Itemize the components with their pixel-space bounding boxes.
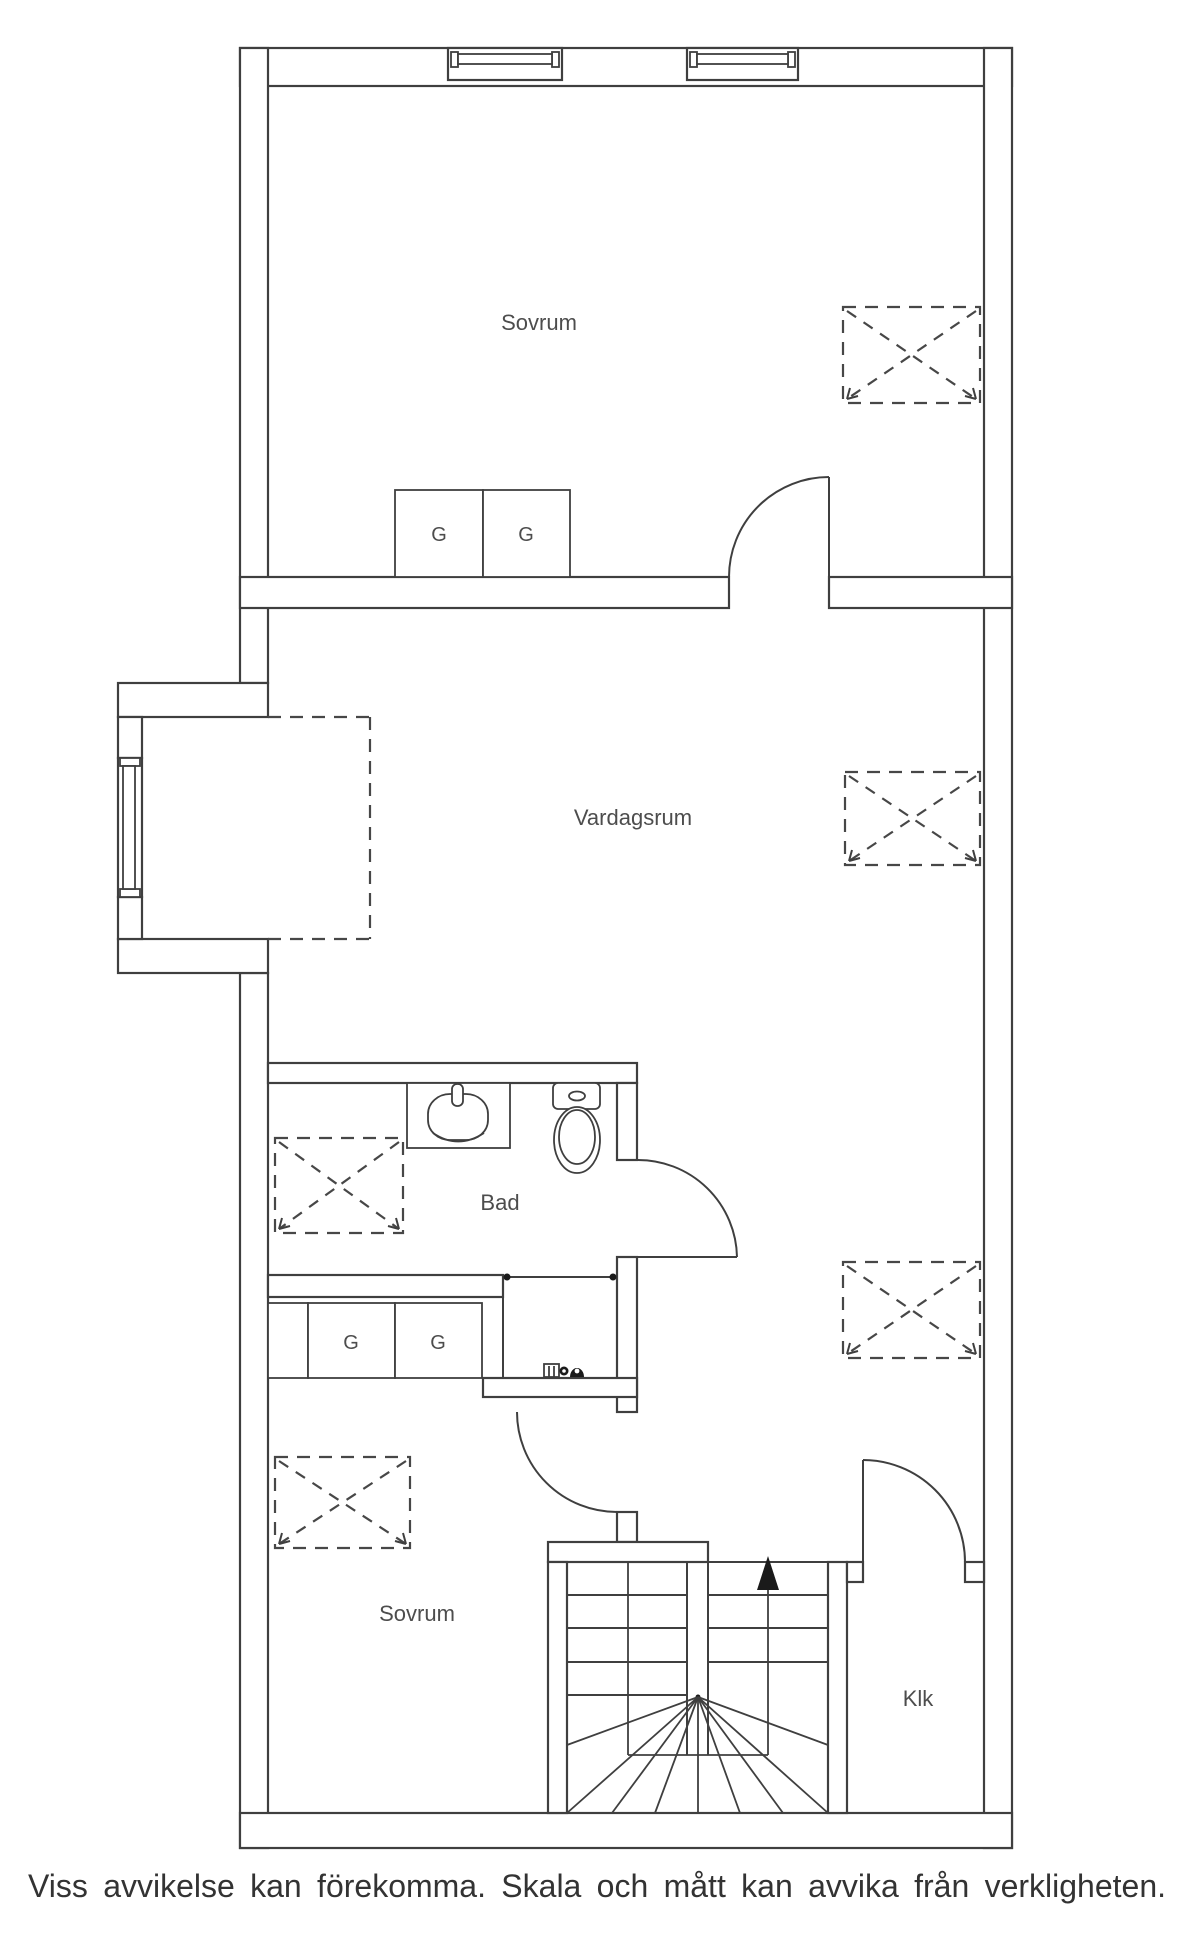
toilet-icon [553, 1083, 600, 1173]
window-icon [118, 758, 142, 897]
skylight-icon [843, 1262, 980, 1358]
door-swing-icon [729, 477, 829, 608]
wardrobe-label: G [431, 524, 447, 546]
window-icon [687, 48, 798, 80]
sink-icon [407, 1083, 510, 1148]
skylight-icon [275, 1457, 410, 1548]
room-label-bedroom-upper: Sovrum [501, 310, 577, 335]
wardrobe-label: G [343, 1332, 359, 1354]
stair-winder-fan [567, 1695, 828, 1814]
wardrobe-label: G [518, 524, 534, 546]
skylight-icon [843, 307, 980, 403]
wardrobe-icon [268, 490, 570, 1378]
staircase-icon [567, 1556, 828, 1813]
door-swing-icon [637, 1160, 737, 1257]
room-label-living-room: Vardagsrum [574, 805, 692, 830]
window-icon [448, 48, 562, 80]
floor-plan: G G G G [0, 0, 1200, 1955]
door-swing-icon [517, 1412, 617, 1512]
door-swing-icon [863, 1460, 965, 1562]
alcove-projection [268, 717, 370, 939]
skylight-icon [275, 1138, 403, 1233]
room-label-bathroom: Bad [480, 1190, 519, 1215]
skylight-icon [845, 772, 980, 865]
disclaimer-text: Viss avvikelse kan förekomma. Skala och … [28, 1868, 1166, 1905]
utility-fixtures-icon [544, 1364, 584, 1377]
room-label-bedroom-lower: Sovrum [379, 1601, 455, 1626]
outer-walls [240, 48, 1012, 1848]
room-label-closet: Klk [903, 1686, 935, 1711]
wardrobe-label: G [430, 1332, 446, 1354]
opening-marker-icon [504, 1274, 617, 1281]
floor-plan-page: G G G G [0, 0, 1200, 1955]
